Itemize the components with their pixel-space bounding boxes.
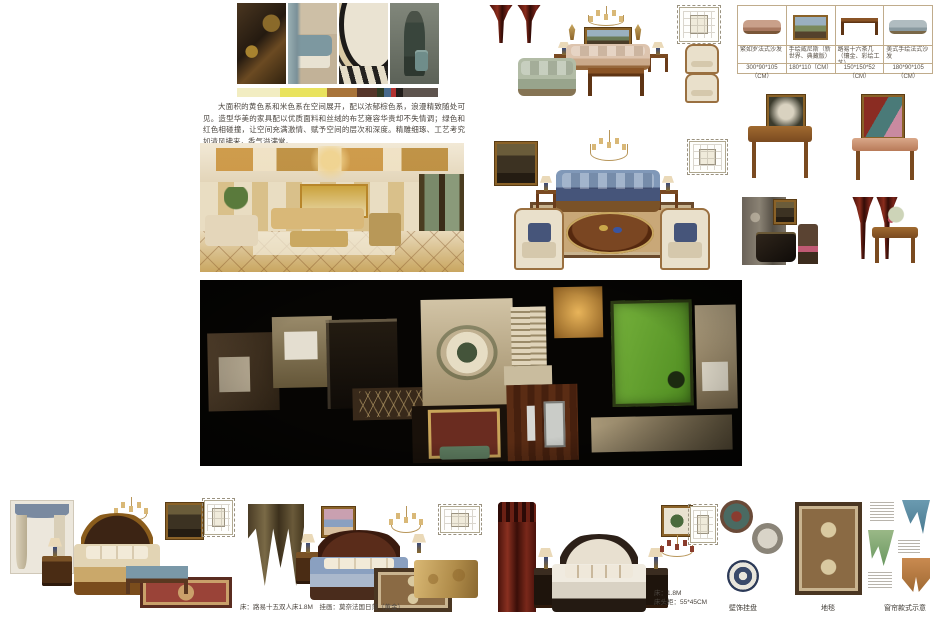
render-chandelier (311, 146, 351, 182)
chandelier-candles (675, 544, 679, 550)
sofa-green (518, 58, 576, 96)
floorplan-bedroom-left-1 (207, 332, 279, 412)
catalog-item-name: 美式手绘法式沙发 (884, 46, 932, 64)
catalog-item-size: 180*90*105（CM） (884, 64, 932, 73)
flower-vase (884, 205, 908, 229)
lamp-bed1 (48, 538, 62, 557)
goblet-curtain-left (489, 5, 513, 43)
palette-swatch (237, 88, 280, 97)
curtain-style-label: 窗帘款式示意 (876, 603, 934, 613)
small-painting (774, 200, 796, 224)
annotation-text-lines-3 (868, 572, 892, 588)
catalog-image-sofa-pink (738, 6, 786, 46)
bed3-caption: 床：1.8M 床头柜：55*45CM (654, 589, 724, 607)
sofa-main-cream (566, 44, 650, 70)
catalog-column-3: 路易十六茶几（镶金、彩绘工艺） 150*150*52（CM） (836, 6, 885, 73)
pillows (565, 565, 633, 577)
painting-bed1 (166, 503, 203, 539)
lamp-right-mid (662, 176, 674, 191)
console-table-marble (852, 138, 918, 180)
side-table-right (648, 54, 668, 72)
curtain-style-sketches (868, 500, 932, 595)
floorplan-bedroom-right (695, 304, 738, 409)
floorplan-sketch-mid (689, 141, 726, 173)
floorplan-landing (503, 366, 552, 386)
sofa-thumbnail (743, 20, 781, 35)
inspiration-photo-strip (237, 3, 439, 84)
decor-plate-2 (752, 523, 783, 554)
lamp-bed3-left (538, 548, 553, 569)
catalog-image-sofa-silver (884, 6, 932, 46)
catalog-item-name: 手绘威尼斯（新世界、典藏版） (787, 46, 835, 64)
sofa-blue-mid (556, 170, 660, 212)
floorplan-walkway (591, 414, 733, 452)
curtain-sketch-green-swag (868, 530, 894, 566)
catalog-column-1: 繁如罗法式沙发 300*90*105（CM） (738, 6, 787, 73)
black-commode (756, 232, 796, 262)
palette-swatch (396, 88, 403, 97)
rug-label: 地毯 (806, 603, 850, 613)
oval-coffee-table (566, 212, 654, 254)
catalog-item-size: 150*150*52（CM） (836, 64, 884, 73)
annotation-text-lines-1 (870, 502, 894, 522)
catalog-item-name: 路易十六茶几（镶金、彩绘工艺） (836, 46, 884, 64)
goblet-curtain-right-1 (852, 197, 874, 259)
bed3-caption-bed: 床：1.8M (654, 589, 724, 598)
plant-painting (662, 506, 692, 536)
palette-swatch (403, 88, 438, 97)
floorplan-hall-carpet (352, 387, 445, 421)
catalog-image-table (836, 6, 884, 46)
photo-pillows-curtain (288, 3, 337, 84)
chandelier-top (584, 6, 628, 28)
bed3-caption-nightstand: 床头柜：55*45CM (654, 598, 724, 607)
bed2-caption: 床：路易十五双人床1.8M 挂画：莫奈法国日落（黄金） (240, 603, 440, 612)
pedestal-right (658, 190, 678, 210)
curtain-sketch-brown-swag (902, 558, 930, 592)
photo-gold-ornament (237, 3, 286, 84)
catalog-item-size: 300*90*105（CM） (738, 64, 786, 73)
decor-plate-1 (720, 500, 753, 533)
bench-blue-cushion (126, 566, 188, 594)
chandelier-candles (404, 517, 408, 523)
furniture-catalog-table: 繁如罗法式沙发 300*90*105（CM） 手绘威尼斯（新世界、典藏版） 18… (737, 5, 933, 74)
landscape-painting-mid (495, 142, 537, 185)
chandelier-candles (604, 14, 608, 20)
palette-swatch (377, 88, 384, 97)
floorplan-lit-room (553, 287, 603, 338)
color-palette-strip (237, 88, 438, 97)
annotation-text-lines-2 (898, 540, 920, 554)
armchair-mid-left (514, 208, 564, 270)
console-with-flowers (872, 227, 918, 263)
armchair-top-1 (685, 44, 719, 74)
catalog-column-4: 美式手绘法式沙发 180*90*105（CM） (884, 6, 932, 73)
floorplan-dining-room (421, 298, 515, 408)
sofa-thumbnail (889, 20, 927, 35)
aerial-floorplan-render (200, 280, 742, 466)
wall-sconce-right (634, 24, 642, 40)
area-rug (795, 502, 862, 595)
coffee-table-square (588, 68, 644, 96)
catalog-image-painting (787, 6, 835, 46)
floorplan-sketch-bed1 (204, 500, 233, 535)
lamp-bed2-right (412, 534, 426, 553)
floorplan-sketch-top (679, 7, 719, 42)
render-coffee-table (290, 231, 348, 248)
armchair-top-2 (685, 73, 719, 103)
living-room-render (200, 143, 464, 272)
lamp-left-mid (540, 176, 552, 191)
floorplan-wood-corridor (506, 384, 578, 462)
table-thumbnail (841, 18, 877, 36)
nightstand-bed1 (42, 556, 72, 586)
chandelier-mid (586, 130, 632, 164)
table-lamp-right (652, 42, 664, 55)
catalog-item-size: 180*110（CM） (787, 64, 835, 73)
console-table-wood (748, 126, 812, 178)
wall-sconce-left (568, 24, 576, 40)
catalog-column-2: 手绘威尼斯（新世界、典藏版） 180*110（CM） (787, 6, 836, 73)
chandelier-candles (607, 142, 611, 148)
floorplan-kitchen (326, 319, 398, 410)
floorplan-sketch-bed3 (690, 506, 716, 543)
pedestal-left (536, 190, 556, 210)
render-sofa-middle (271, 208, 363, 230)
palette-swatch (357, 88, 378, 97)
render-sofa-left (205, 215, 258, 246)
photo-marble-floor-railing (339, 3, 388, 84)
render-armchair (369, 213, 401, 247)
palette-swatch (280, 88, 327, 97)
photo-fashion-figure (390, 3, 439, 84)
figure-painting (862, 95, 904, 139)
chandelier-candles (129, 506, 133, 512)
pillows (86, 546, 148, 559)
intro-paragraph: 大面积的黄色系和米色系在空间展开，配以浓郁棕色系，浪漫精致随处可见。造型华美的家… (203, 101, 465, 148)
floorplan-rooms (200, 280, 742, 466)
floorplan-sketch-bed2 (440, 506, 480, 533)
decor-plate-3 (727, 560, 759, 592)
interior-design-board: 大面积的黄色系和米色系在空间展开，配以浓郁棕色系，浪漫精致随处可见。造型华美的家… (0, 0, 940, 622)
floorplan-sitting-area (412, 404, 516, 464)
catalog-item-name: 繁如罗法式沙发 (738, 46, 786, 64)
painting-thumbnail (793, 15, 827, 40)
floorplan-bedroom-left-2 (272, 316, 333, 388)
palette-swatch (327, 88, 356, 97)
curtain-sketch-blue-swag (902, 500, 930, 534)
golden-chest (414, 560, 478, 598)
floorplan-staircase (510, 306, 546, 366)
red-velvet-drape (498, 502, 536, 612)
goblet-curtain-right (517, 5, 541, 43)
side-chair-pink-seat (798, 224, 818, 264)
armchair-mid-right (660, 208, 710, 270)
bed-set3 (552, 534, 646, 612)
floorplan-courtyard-lawn (610, 300, 693, 408)
palette-swatch (384, 88, 391, 97)
plates-label: 壁饰挂盘 (718, 603, 768, 613)
render-window (419, 174, 464, 236)
